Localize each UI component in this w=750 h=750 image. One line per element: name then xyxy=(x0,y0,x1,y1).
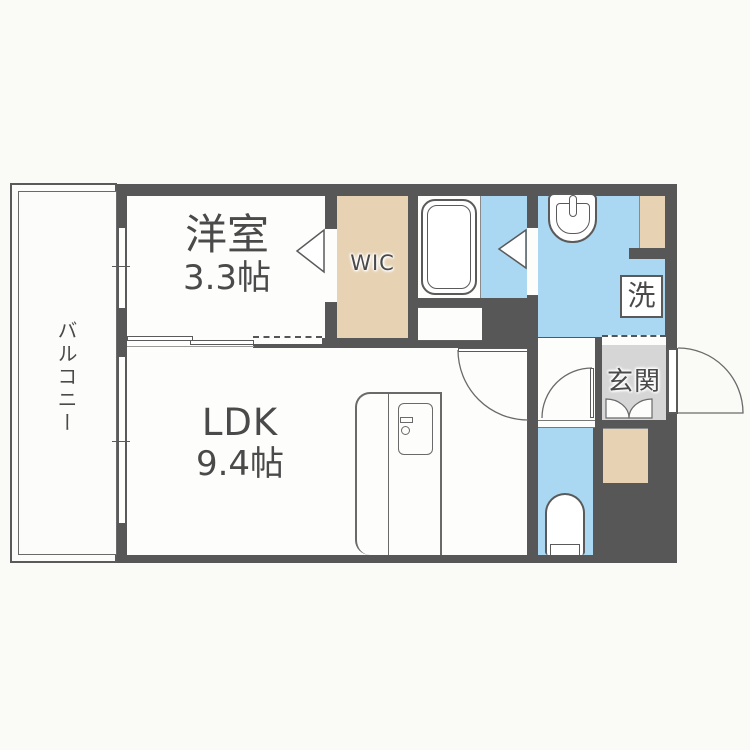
washbasin-faucet xyxy=(569,195,577,217)
shoe-cabinet xyxy=(603,428,648,483)
ldk-label: LDK 9.4帖 xyxy=(150,402,330,484)
western-room-size: 3.3帖 xyxy=(137,259,317,298)
bathtub-inner xyxy=(427,205,471,289)
sliding-door-panel-2 xyxy=(190,340,254,345)
ldk-size: 9.4帖 xyxy=(150,445,330,484)
bath-door-icon xyxy=(495,226,530,272)
ldk-name: LDK xyxy=(150,402,330,445)
bath-step xyxy=(418,307,482,341)
western-room-label: 洋室 3.3帖 xyxy=(137,211,317,298)
sliding-door-track xyxy=(127,346,254,347)
ldk-window xyxy=(117,357,127,523)
front-door-arc xyxy=(676,346,746,416)
kitchen-faucet-knob xyxy=(401,426,410,435)
shoe-cabinet-doors-icon xyxy=(604,398,654,420)
toilet-seat xyxy=(550,544,580,555)
balcony-label: バルコニー xyxy=(46,302,86,452)
floor-plan: バルコニー 玄関 洗 xyxy=(0,0,750,750)
window-tick-2 xyxy=(112,441,130,442)
ldk-dashed-zone xyxy=(253,336,322,344)
sliding-door-panel-1 xyxy=(127,336,193,341)
washroom-storage xyxy=(639,196,665,251)
toilet-door-arc xyxy=(540,366,596,422)
window-tick-1 xyxy=(112,266,130,267)
kitchen-counter-divider xyxy=(388,392,389,555)
toilet-door-leaf xyxy=(590,368,594,418)
wic-label: WIC xyxy=(337,251,408,275)
entrance-threshold xyxy=(602,335,666,345)
washing-machine-label: 洗 xyxy=(620,280,663,312)
western-room-name: 洋室 xyxy=(137,211,317,259)
storage-wall-stub xyxy=(629,248,666,259)
entrance-label: 玄関 xyxy=(600,368,668,398)
western-room-window xyxy=(117,228,127,308)
ldk-door-arc xyxy=(456,348,532,424)
kitchen-faucet xyxy=(400,417,413,423)
